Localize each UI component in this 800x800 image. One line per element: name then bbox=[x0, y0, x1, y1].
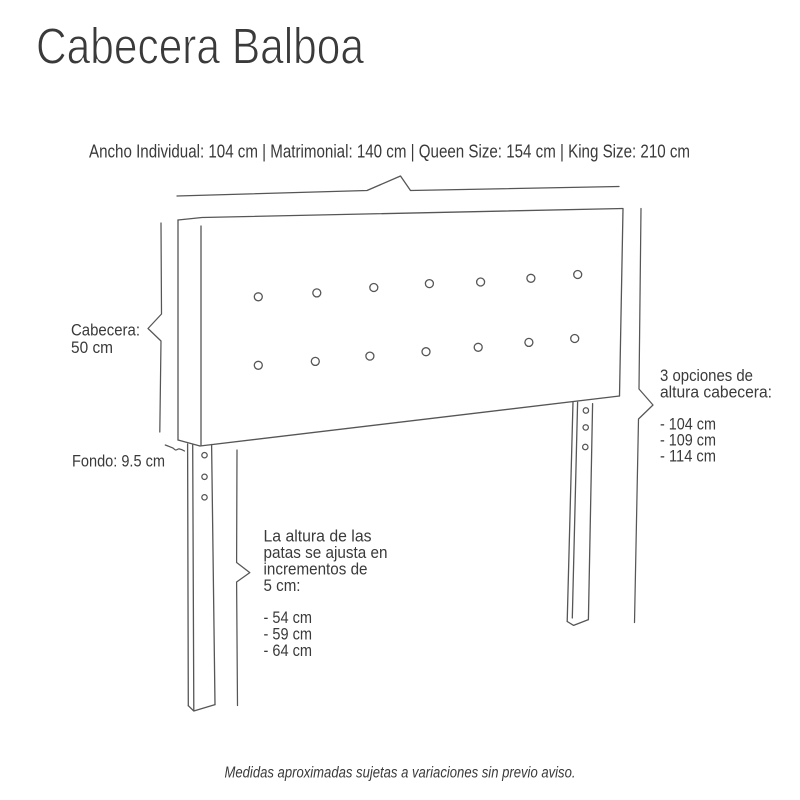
svg-text:Ancho Individual: 104 cm | Mat: Ancho Individual: 104 cm | Matrimonial: … bbox=[89, 142, 690, 162]
svg-text:- 64 cm: - 64 cm bbox=[264, 641, 313, 660]
svg-text:Cabecera:: Cabecera: bbox=[71, 321, 140, 340]
svg-text:altura cabecera:: altura cabecera: bbox=[660, 383, 772, 402]
svg-text:5 cm:: 5 cm: bbox=[264, 576, 301, 595]
svg-text:Cabecera Balboa: Cabecera Balboa bbox=[36, 18, 365, 75]
svg-text:Medidas aproximadas sujetas a: Medidas aproximadas sujetas a variacione… bbox=[225, 765, 576, 782]
svg-text:50 cm: 50 cm bbox=[71, 338, 113, 357]
svg-text:Fondo: 9.5 cm: Fondo: 9.5 cm bbox=[72, 452, 165, 471]
svg-text:- 114 cm: - 114 cm bbox=[660, 447, 716, 466]
